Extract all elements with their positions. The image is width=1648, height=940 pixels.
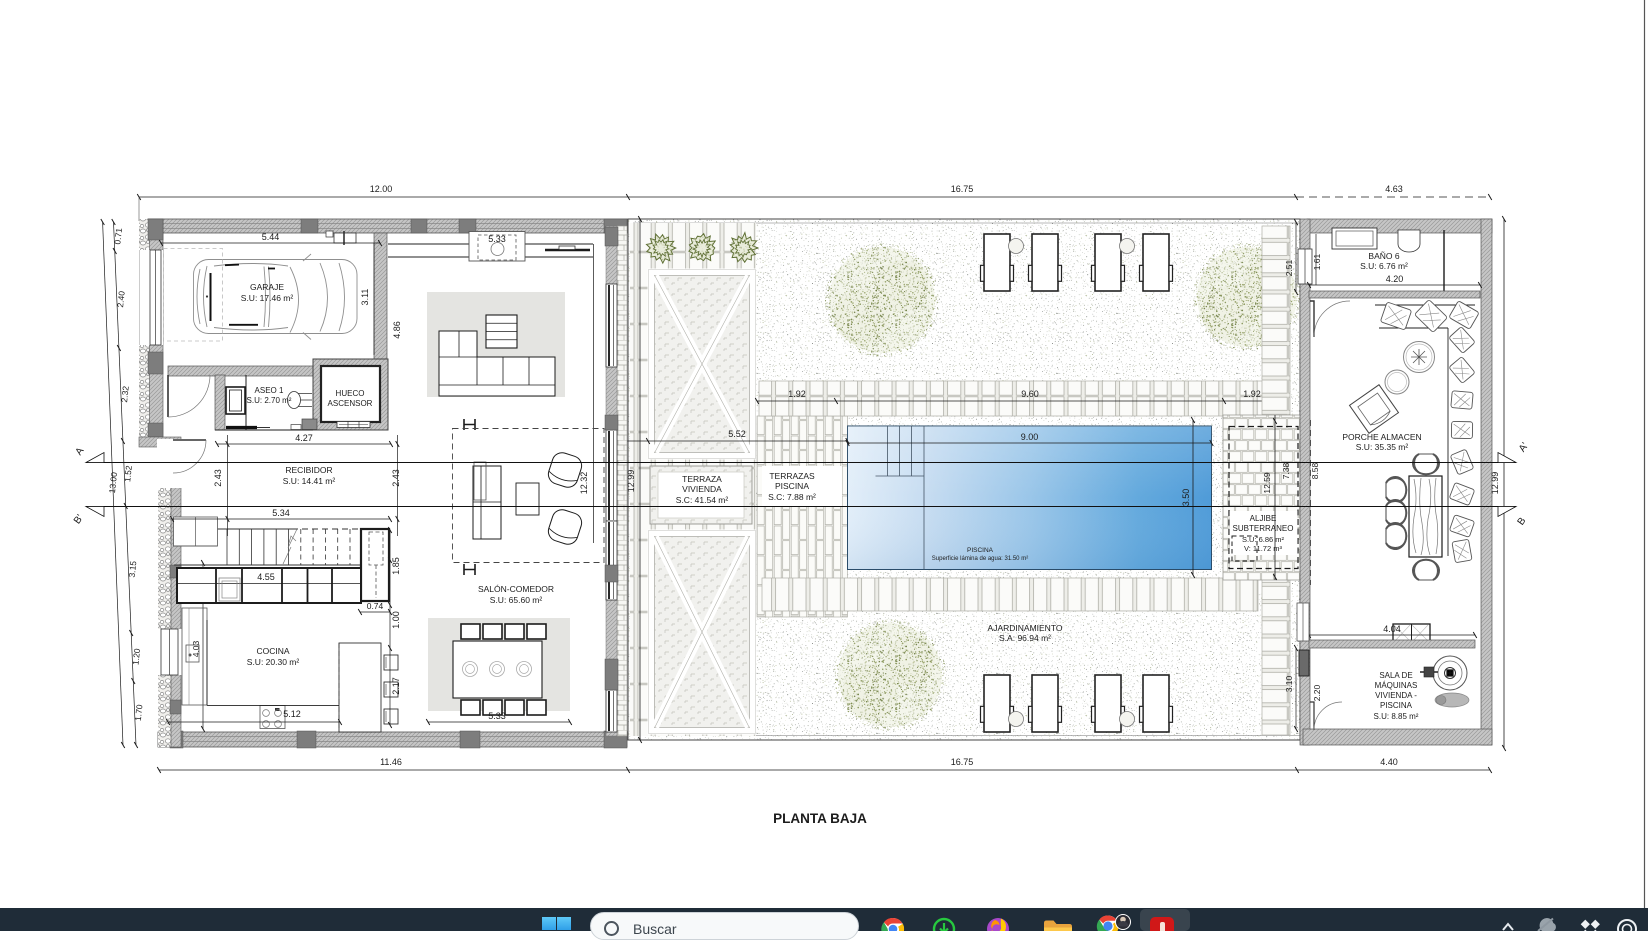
svg-text:16.75: 16.75 [951,184,974,194]
svg-text:S.U: 35.35 m²: S.U: 35.35 m² [1356,442,1409,452]
svg-text:SUBTERRANEO: SUBTERRANEO [1233,524,1294,533]
svg-text:V: 11.72 m³: V: 11.72 m³ [1244,544,1282,553]
svg-text:0.74: 0.74 [367,601,384,611]
svg-text:4.40: 4.40 [1380,757,1398,767]
svg-text:5.12: 5.12 [283,709,301,719]
svg-text:4.04: 4.04 [1383,624,1401,634]
svg-text:1.61: 1.61 [1312,253,1322,270]
svg-text:1.20: 1.20 [130,648,142,666]
svg-text:TERRAZAS: TERRAZAS [769,471,815,481]
svg-text:3.10: 3.10 [1284,675,1294,692]
svg-text:HUECO: HUECO [336,389,365,398]
svg-text:4.27: 4.27 [295,433,313,443]
svg-text:COCINA: COCINA [256,646,289,656]
svg-text:16.75: 16.75 [951,757,974,767]
svg-text:S.U: 20.30 m²: S.U: 20.30 m² [247,657,300,667]
svg-text:MÁQUINAS: MÁQUINAS [1375,681,1418,690]
svg-text:S.C: 7.88 m²: S.C: 7.88 m² [768,492,816,502]
svg-text:ASCENSOR: ASCENSOR [328,399,373,408]
svg-text:4.03: 4.03 [191,640,201,657]
svg-text:7.38: 7.38 [1281,462,1291,479]
svg-text:S.U: 8.85 m²: S.U: 8.85 m² [1374,712,1419,721]
svg-text:PISCINA: PISCINA [775,481,809,491]
svg-text:S.C: 41.54 m²: S.C: 41.54 m² [676,495,729,505]
svg-text:1.92: 1.92 [788,389,806,399]
svg-text:1.85: 1.85 [391,557,401,575]
svg-text:2.51: 2.51 [1284,259,1294,276]
svg-text:S.U: 65.60 m²: S.U: 65.60 m² [490,595,543,605]
svg-text:5.33: 5.33 [488,234,506,244]
svg-text:SALA DE: SALA DE [1379,671,1412,680]
svg-text:0.71: 0.71 [112,227,124,245]
svg-text:3.11: 3.11 [360,289,370,306]
svg-text:12.99: 12.99 [1490,472,1500,495]
svg-text:12.59: 12.59 [1262,472,1272,494]
svg-text:8.58: 8.58 [1310,462,1320,479]
svg-text:4.63: 4.63 [1385,184,1403,194]
svg-text:2.17: 2.17 [391,677,401,695]
svg-text:GARAJE: GARAJE [250,282,284,292]
svg-text:5.44: 5.44 [262,232,280,242]
svg-text:2.40: 2.40 [115,290,127,308]
svg-text:VIVIENDA: VIVIENDA [682,484,722,494]
svg-text:S.U: 17.46 m²: S.U: 17.46 m² [241,293,294,303]
svg-text:5.52: 5.52 [728,429,746,439]
svg-text:ALJIBE: ALJIBE [1250,514,1277,523]
svg-text:12.99: 12.99 [626,470,636,493]
svg-text:5.34: 5.34 [272,508,290,518]
svg-text:3.50: 3.50 [1181,489,1191,507]
svg-text:11.46: 11.46 [380,757,402,767]
svg-text:12.00: 12.00 [370,184,393,194]
svg-text:2.32: 2.32 [119,385,131,403]
svg-text:3.15: 3.15 [127,560,139,578]
svg-text:9.60: 9.60 [1021,389,1039,399]
svg-text:4.20: 4.20 [1386,274,1404,284]
svg-text:SALÓN-COMEDOR: SALÓN-COMEDOR [478,584,554,594]
svg-text:9.00: 9.00 [1021,432,1039,442]
svg-text:4.55: 4.55 [257,572,275,582]
svg-text:2.43: 2.43 [213,469,223,487]
svg-text:Superficie lámina de agua: 31.: Superficie lámina de agua: 31.50 m² [932,556,1028,562]
svg-text:1.92: 1.92 [1243,389,1261,399]
svg-text:4.86: 4.86 [392,321,402,339]
svg-text:1.70: 1.70 [133,704,145,722]
svg-text:PLANTA BAJA: PLANTA BAJA [773,811,867,826]
svg-text:VIVIENDA -: VIVIENDA - [1375,691,1417,700]
svg-text:2.43: 2.43 [391,469,401,487]
svg-text:S.U: 2.70 m²: S.U: 2.70 m² [247,396,292,405]
svg-text:PISCINA: PISCINA [1380,701,1413,710]
svg-text:S.U: 14.41 m²: S.U: 14.41 m² [283,476,336,486]
svg-text:TERRAZA: TERRAZA [682,474,722,484]
svg-text:ASEO 1: ASEO 1 [255,386,284,395]
svg-text:2.20: 2.20 [1312,684,1322,701]
svg-text:RECIBIDOR: RECIBIDOR [285,465,332,475]
svg-text:S.A: 96.94 m²: S.A: 96.94 m² [999,633,1051,643]
svg-text:BAÑO 6: BAÑO 6 [1368,251,1399,261]
svg-text:PORCHE ALMACEN: PORCHE ALMACEN [1342,432,1421,442]
svg-text:S.U: 6.76 m²: S.U: 6.76 m² [1360,261,1408,271]
svg-text:1.52: 1.52 [122,465,134,483]
svg-text:AJARDINAMIENTO: AJARDINAMIENTO [988,623,1063,633]
svg-text:1.00: 1.00 [391,611,401,629]
svg-text:PISCINA: PISCINA [967,547,994,554]
svg-text:5.33: 5.33 [488,711,506,721]
svg-text:12.32: 12.32 [579,472,589,495]
